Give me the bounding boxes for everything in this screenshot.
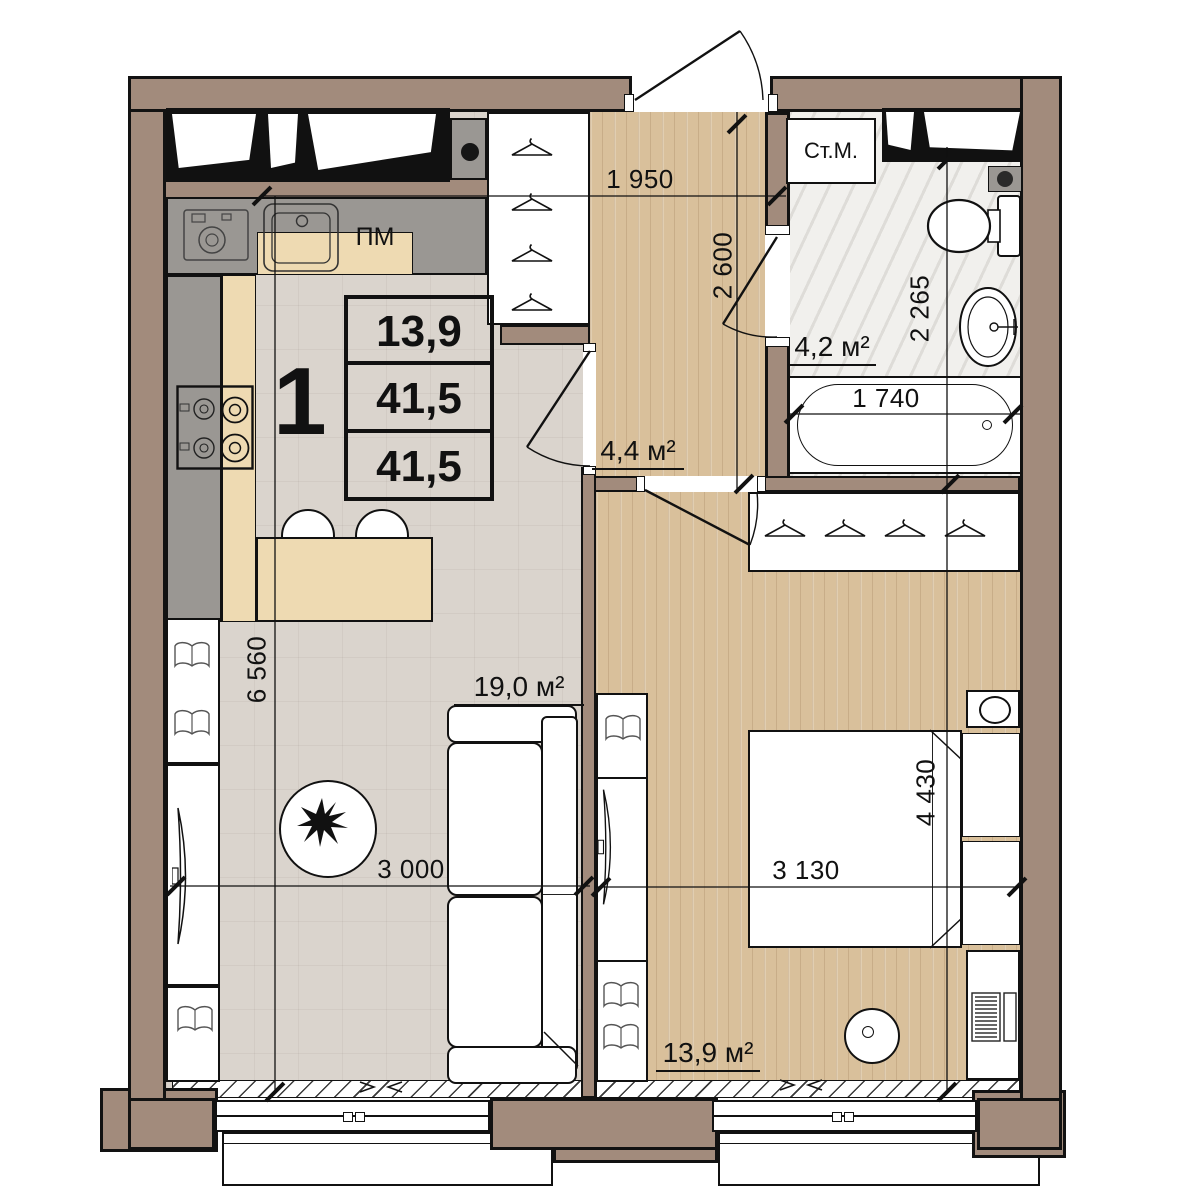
stamp-rooms-count: 1	[272, 352, 328, 456]
door-jamb	[583, 343, 596, 352]
bathroom-windows	[882, 108, 1022, 162]
hanger-icon	[942, 518, 988, 538]
bar-table	[256, 537, 433, 622]
window-glass	[308, 114, 436, 170]
vent-hole-icon	[997, 171, 1013, 187]
vent-hole-icon	[461, 143, 479, 161]
hanger-icon	[762, 518, 808, 538]
window-glass	[268, 114, 298, 168]
pouf	[844, 1008, 900, 1064]
door-jamb	[765, 337, 790, 347]
wall-top-right	[770, 76, 1062, 112]
tv-icon	[172, 806, 196, 946]
kitchen-windows	[166, 108, 450, 182]
wall-top-left	[128, 76, 632, 112]
vent-shaft-kitchen	[450, 118, 487, 180]
wall-stub-under-closet	[500, 325, 590, 345]
window-glass	[924, 112, 1020, 152]
wall-right	[1020, 76, 1062, 1150]
washing-machine-label: Ст.М.	[786, 138, 876, 164]
entrance-opening	[632, 78, 770, 112]
lamp-icon	[979, 696, 1011, 724]
book-icon	[602, 1022, 640, 1052]
shelf-divider	[598, 777, 646, 779]
door-jamb	[624, 94, 634, 112]
bathroom-area-label: 4,2 м²	[788, 331, 876, 366]
book-icon	[602, 980, 640, 1010]
stamp-total-reduced: 41,5	[348, 442, 490, 492]
bedroom-area-label: 13,9 м²	[656, 1037, 760, 1072]
vent-shaft-bathroom	[988, 166, 1022, 192]
window-glass	[886, 112, 914, 150]
book-icon	[173, 640, 211, 670]
coffee-machine-icon	[182, 206, 250, 262]
wall-partition-living-bedroom	[581, 467, 596, 1098]
window-mullion	[844, 1112, 854, 1122]
window-bottom-living	[215, 1100, 490, 1132]
hanger-icon	[510, 192, 554, 212]
hanger-icon	[510, 243, 554, 263]
door-jamb	[768, 94, 778, 112]
window-mullion	[832, 1112, 842, 1122]
sofa-armrest	[447, 1046, 577, 1084]
bookshelf-unit	[166, 986, 220, 1082]
kitchen-sink-icon	[262, 202, 340, 274]
plant-icon	[294, 794, 350, 850]
window-bottom-bedroom	[712, 1100, 977, 1132]
door-jamb	[757, 476, 766, 492]
stamp-box-living-area: 13,9	[344, 295, 494, 365]
door-jamb	[636, 476, 645, 492]
stove-icon	[176, 385, 254, 470]
dim-bedroom-depth: 4 430	[911, 733, 942, 853]
hanger-icon	[510, 292, 554, 312]
stamp-box-total-reduced: 41,5	[344, 429, 494, 501]
sofa-back-divider	[543, 894, 576, 895]
dim-bathtub-length: 1 740	[826, 383, 946, 414]
book-icon	[173, 708, 211, 738]
laptop-icon	[970, 990, 1018, 1044]
sofa-backrest	[541, 716, 578, 1072]
dim-hallway-width: 1 950	[575, 164, 705, 195]
window-mullion	[343, 1112, 353, 1122]
wall-bottom-2	[490, 1098, 718, 1150]
pouf-button	[862, 1026, 874, 1038]
stamp-living-area: 13,9	[348, 307, 490, 357]
bedroom-door-opening	[645, 476, 757, 492]
stamp-box-total-area: 41,5	[344, 361, 494, 433]
wall-bath-left-bottom	[765, 337, 790, 480]
dishwasher-label: ПМ	[349, 223, 401, 251]
dim-bathroom-depth: 2 265	[905, 249, 936, 369]
door-jamb	[765, 225, 790, 235]
dim-living-depth: 6 560	[242, 610, 273, 730]
bathtub-drain-icon	[982, 420, 992, 430]
hanger-icon	[822, 518, 868, 538]
wall-bottom-1	[128, 1098, 215, 1150]
radiator-band-bedroom	[596, 1080, 1020, 1098]
bed-headboard-panel	[962, 733, 1020, 837]
bed-headboard-panel	[962, 841, 1020, 945]
wall-bottom-3	[977, 1098, 1062, 1150]
hanger-icon	[510, 137, 554, 157]
sofa-seat-cushion	[447, 896, 543, 1048]
wall-left	[128, 76, 166, 1150]
book-icon	[176, 1004, 214, 1034]
stamp-total-area: 41,5	[348, 374, 490, 424]
dim-hallway-depth: 2 600	[708, 206, 739, 326]
washbasin-icon	[958, 285, 1022, 369]
nightstand	[966, 690, 1020, 728]
dim-bedroom-width: 3 130	[746, 855, 866, 886]
floor-plan: ПМ 1 13,9 41,5 41,5	[0, 0, 1200, 1200]
dim-living-width: 3 000	[351, 854, 471, 885]
window-mullion	[355, 1112, 365, 1122]
hanger-icon	[882, 518, 928, 538]
hallway-area-label: 4,4 м²	[592, 435, 684, 470]
bathroom-door-opening	[765, 235, 790, 337]
tv-icon	[598, 788, 620, 906]
book-icon	[604, 713, 642, 743]
kitchen-living-area-label: 19,0 м²	[454, 671, 584, 706]
window-glass	[172, 114, 256, 168]
wall-hall-bottom-right	[757, 476, 1020, 492]
toilet-icon	[926, 194, 1022, 258]
shelf-divider	[598, 960, 646, 962]
